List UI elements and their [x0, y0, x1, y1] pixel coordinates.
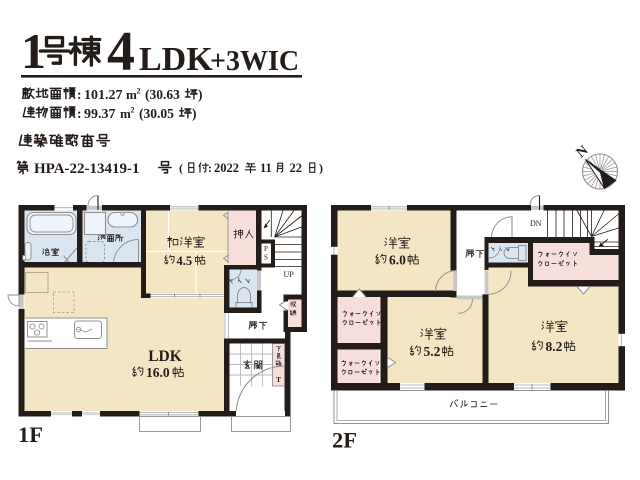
svg-text:HPA-22-13419-1: HPA-22-13419-1 — [34, 161, 140, 177]
svg-text:11: 11 — [260, 161, 272, 175]
svg-text:2F: 2F — [332, 428, 357, 453]
svg-text::: : — [77, 87, 82, 102]
svg-text:T: T — [276, 375, 281, 384]
svg-text:DN: DN — [530, 219, 542, 228]
svg-text::: : — [77, 106, 82, 121]
svg-text:4: 4 — [107, 21, 135, 83]
svg-text:4.5: 4.5 — [177, 254, 193, 268]
svg-text:UP: UP — [284, 270, 295, 279]
svg-text:1F: 1F — [18, 422, 43, 447]
svg-text:2022: 2022 — [214, 161, 239, 175]
svg-text:): ) — [319, 161, 323, 175]
svg-text:LDK: LDK — [139, 41, 213, 78]
svg-text:m: m — [120, 106, 131, 121]
svg-text:m: m — [126, 87, 137, 102]
svg-text:8.2: 8.2 — [546, 339, 563, 354]
svg-text:+3WIC: +3WIC — [210, 46, 299, 77]
svg-text:(30.05: (30.05 — [139, 106, 174, 121]
svg-text:): ) — [198, 87, 203, 102]
svg-text:16.0: 16.0 — [146, 365, 170, 380]
svg-text:P: P — [264, 245, 268, 253]
svg-text:(: ( — [179, 161, 183, 175]
svg-text:): ) — [192, 106, 197, 121]
svg-text:99.37: 99.37 — [84, 107, 116, 122]
svg-text:S: S — [264, 254, 268, 262]
svg-text:(30.63: (30.63 — [145, 87, 180, 102]
svg-text:LDK: LDK — [148, 348, 182, 365]
svg-text:6.0: 6.0 — [389, 253, 406, 268]
svg-text::: : — [208, 161, 212, 175]
svg-text:22: 22 — [290, 161, 303, 175]
svg-text:5.2: 5.2 — [424, 344, 441, 359]
svg-text:101.27: 101.27 — [84, 88, 123, 103]
svg-text:2: 2 — [131, 106, 135, 115]
svg-text:2: 2 — [137, 87, 141, 96]
